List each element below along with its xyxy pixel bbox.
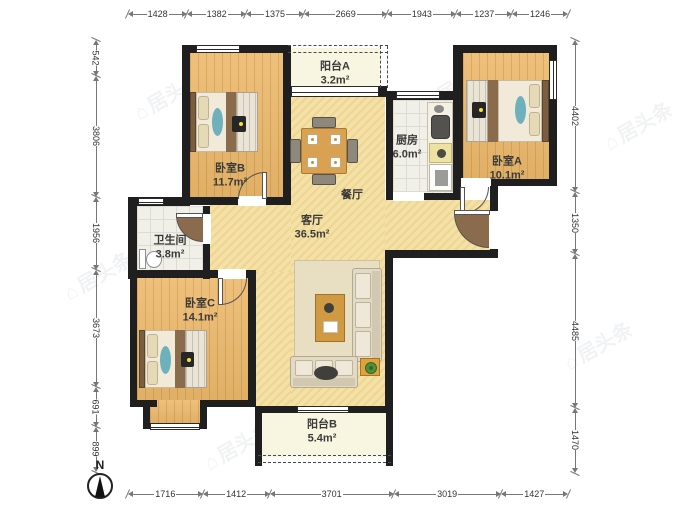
plate xyxy=(330,157,341,168)
bedroom-a-blanket xyxy=(488,80,498,142)
window xyxy=(396,91,440,99)
room-name: 客厅 xyxy=(295,214,330,228)
dimension-segment: 3806 xyxy=(88,76,104,197)
room-label-dining: 餐厅 xyxy=(341,189,363,203)
dimension-chain-right: 4402135044851470 xyxy=(567,40,583,473)
toilet-tank xyxy=(139,249,146,269)
room-name: 卧室B xyxy=(213,162,247,176)
room-area: 3.2m² xyxy=(320,74,350,88)
balcony-a-dashed-edge xyxy=(380,46,381,88)
sofa-cushion xyxy=(355,331,371,357)
bedroom-b-door-leaf xyxy=(262,172,267,199)
dimension-value: 542 xyxy=(90,51,102,66)
dimension-segment: 1382 xyxy=(187,6,245,22)
room-area: 14.1m² xyxy=(183,311,218,325)
bedroom-c-pillow xyxy=(147,334,158,358)
bedroom-c-tv xyxy=(181,352,194,367)
wall-segment xyxy=(182,45,190,204)
faucet xyxy=(434,105,444,113)
dimension-value: 2669 xyxy=(335,9,357,19)
bedroom-c-bay-floor xyxy=(150,400,200,423)
dimension-segment: 3019 xyxy=(394,486,501,502)
hallway-floor xyxy=(210,205,291,272)
room-label-bathroom: 卫生间 3.8m² xyxy=(154,234,187,262)
sofa-cushion xyxy=(355,273,371,299)
dimension-value: 1956 xyxy=(90,223,102,243)
dimension-segment: 1237 xyxy=(456,6,512,22)
bedroom-c-door-leaf xyxy=(218,278,223,305)
wall-segment xyxy=(182,197,291,205)
living-floor-lower xyxy=(256,272,291,406)
bay-window xyxy=(150,423,200,430)
dimension-value: 1237 xyxy=(473,9,495,19)
window xyxy=(297,406,349,413)
plate xyxy=(307,134,318,145)
room-area: 3.8m² xyxy=(154,248,187,262)
wall-segment xyxy=(390,250,498,258)
dimension-value: 1382 xyxy=(206,9,228,19)
dimension-value: 3806 xyxy=(90,126,102,146)
dimension-segment: 1956 xyxy=(88,197,104,270)
side-table xyxy=(360,358,380,376)
room-name: 阳台A xyxy=(320,60,350,74)
dimension-value: 1716 xyxy=(154,489,176,499)
dimension-value: 3019 xyxy=(436,489,458,499)
dimension-value: 1427 xyxy=(523,489,545,499)
dimension-segment: 3673 xyxy=(88,270,104,387)
bedroom-b-tv xyxy=(232,116,246,132)
window xyxy=(549,60,557,100)
dimension-value: 1412 xyxy=(225,489,247,499)
door-opening xyxy=(489,211,499,249)
dimension-segment: 2669 xyxy=(304,6,387,22)
room-area: 11.7m² xyxy=(213,176,247,190)
wall-segment xyxy=(255,406,262,466)
bedroom-b-pillow xyxy=(198,96,209,120)
dimension-chain-top: 1428138213752669194312371246 xyxy=(128,6,568,22)
room-name: 卧室C xyxy=(183,297,218,311)
dimension-value: 691 xyxy=(90,399,102,414)
floor-plan: ⌂居头条 ⌂居头条 ⌂居头条 ⌂居头条 ⌂居头条 ⌂居头条 ⌂居头条 xyxy=(0,0,680,510)
room-area: 10.1m² xyxy=(490,169,525,183)
bedroom-a-pillow xyxy=(529,84,540,108)
dimension-segment: 1412 xyxy=(203,486,270,502)
kettle xyxy=(324,303,334,313)
room-label-bedroom-a: 卧室A 10.1m² xyxy=(490,155,525,183)
balcony-b-dashed-edge xyxy=(258,462,391,463)
bedroom-b-pillow xyxy=(198,124,209,148)
balcony-a-dashed-edge xyxy=(387,46,388,88)
dimension-chain-bottom: 17161412370130191427 xyxy=(128,486,568,502)
dimension-value: 3673 xyxy=(90,318,102,338)
bedroom-a-pillow xyxy=(529,112,540,136)
dimension-segment: 1428 xyxy=(128,6,187,22)
window xyxy=(138,198,164,205)
plate xyxy=(330,134,341,145)
wall-segment xyxy=(385,250,393,413)
dining-chair xyxy=(290,139,301,163)
bedroom-a-tv xyxy=(472,102,486,118)
dimension-value: 1470 xyxy=(569,430,581,450)
room-label-balcony-a: 阳台A 3.2m² xyxy=(320,60,350,88)
sofa-back xyxy=(372,271,380,359)
cooktop xyxy=(429,143,452,163)
wall-segment xyxy=(200,403,207,429)
dimension-segment: 1716 xyxy=(128,486,203,502)
balcony-b-dashed-edge xyxy=(258,455,391,456)
dimension-value: 1943 xyxy=(411,9,433,19)
dimension-segment: 1246 xyxy=(512,6,568,22)
room-label-bedroom-b: 卧室B 11.7m² xyxy=(213,162,247,190)
wall-segment xyxy=(248,270,256,407)
dimension-value: 899 xyxy=(90,442,102,457)
bedroom-c-throw xyxy=(160,346,171,374)
door-opening xyxy=(202,214,211,244)
wall-segment xyxy=(453,45,557,53)
dimension-value: 4402 xyxy=(569,106,581,126)
room-name: 阳台B xyxy=(307,418,337,432)
dimension-segment: 1943 xyxy=(387,6,456,22)
dimension-segment: 1350 xyxy=(567,192,583,254)
compass-north-label: N xyxy=(80,458,120,472)
dimension-value: 1350 xyxy=(569,213,581,233)
window xyxy=(196,45,240,53)
room-name: 厨房 xyxy=(393,134,422,148)
bedroom-b-throw xyxy=(212,108,223,136)
room-name: 餐厅 xyxy=(341,189,363,203)
bedroom-a-bed-headboard xyxy=(542,80,549,142)
bedroom-a-throw xyxy=(515,96,526,124)
dimension-segment: 1375 xyxy=(246,6,304,22)
wall-segment xyxy=(130,277,137,407)
dimension-segment: 4485 xyxy=(567,254,583,408)
wall-segment xyxy=(143,403,150,429)
room-area: 6.0m² xyxy=(393,148,422,162)
burner xyxy=(437,149,446,158)
wall-segment xyxy=(453,45,463,200)
sofa-cushion xyxy=(295,360,313,376)
dining-chair xyxy=(312,117,336,128)
room-label-kitchen: 厨房 6.0m² xyxy=(393,134,422,162)
dimension-value: 1246 xyxy=(529,9,551,19)
dimension-value: 4485 xyxy=(569,321,581,341)
bedroom-c-pillow xyxy=(147,361,158,385)
bathroom-door-leaf xyxy=(176,213,203,218)
room-label-bedroom-c: 卧室C 14.1m² xyxy=(183,297,218,325)
room-label-balcony-b: 阳台B 5.4m² xyxy=(307,418,337,446)
balcony-a-dashed-edge xyxy=(288,52,388,53)
dimension-value: 3701 xyxy=(321,489,343,499)
sofa-cushion xyxy=(355,302,371,328)
dimension-value: 1428 xyxy=(147,9,169,19)
dining-table xyxy=(301,128,347,174)
room-name: 卫生间 xyxy=(154,234,187,248)
dining-chair xyxy=(347,139,358,163)
room-area: 36.5m² xyxy=(295,228,330,242)
kitchen-opening xyxy=(393,192,424,201)
dimension-segment: 1427 xyxy=(501,486,568,502)
wall-segment xyxy=(283,45,291,204)
dimension-segment: 4402 xyxy=(567,40,583,192)
papers xyxy=(323,321,338,333)
oven-window xyxy=(435,170,448,186)
dimension-segment: 1470 xyxy=(567,408,583,473)
balcony-a-dashed-edge xyxy=(288,45,388,46)
dimension-segment: 542 xyxy=(88,40,104,76)
room-name: 卧室A xyxy=(490,155,525,169)
plate xyxy=(307,157,318,168)
wall-segment xyxy=(200,400,256,407)
coffee-table xyxy=(315,294,345,342)
room-label-living: 客厅 36.5m² xyxy=(295,214,330,242)
oven xyxy=(429,164,452,191)
wall-segment xyxy=(128,197,137,279)
watermark: ⌂居头条 xyxy=(598,93,678,156)
door-opening xyxy=(461,178,490,187)
ottoman xyxy=(314,366,338,380)
kitchen-sink xyxy=(431,115,450,139)
dimension-value: 1375 xyxy=(264,9,286,19)
entry-door-leaf xyxy=(454,210,490,215)
kitchen-counter xyxy=(427,102,453,192)
dimension-segment: 691 xyxy=(88,387,104,427)
dining-chair xyxy=(312,174,336,185)
room-area: 5.4m² xyxy=(307,432,337,446)
dimension-segment: 3701 xyxy=(270,486,394,502)
north-arrow-icon xyxy=(95,476,105,497)
sofa-right xyxy=(352,268,382,362)
compass: N xyxy=(80,458,120,510)
dimension-chain-left: 542380619563673691899 xyxy=(88,40,104,472)
wall-segment xyxy=(386,406,393,466)
plant xyxy=(365,362,377,374)
